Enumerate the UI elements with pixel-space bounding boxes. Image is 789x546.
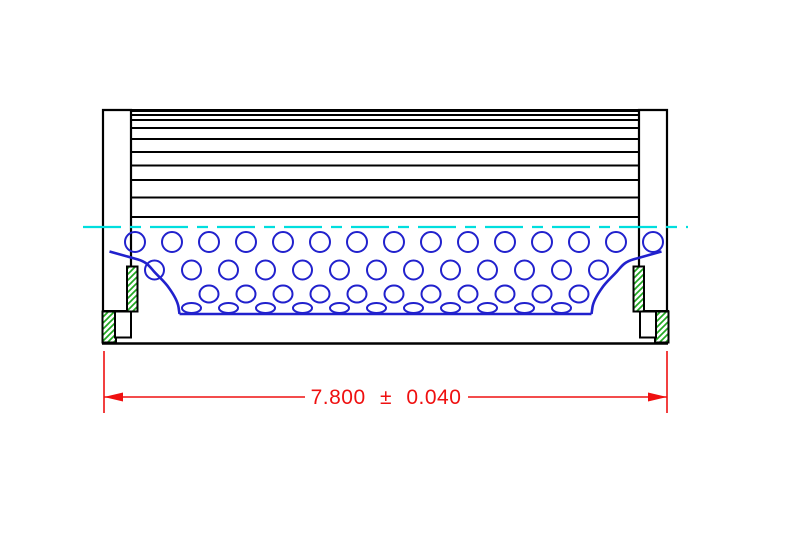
perforation-hole (458, 232, 478, 252)
perforation-hole (310, 232, 330, 252)
perforation-hole (293, 303, 312, 313)
perforation-hole (532, 232, 552, 252)
perforation-hole (533, 286, 552, 303)
left-gasket-box (115, 312, 131, 338)
perforation-hole (219, 261, 238, 280)
perforation-hole (404, 303, 423, 313)
perforation-hole (496, 286, 515, 303)
dimension-arrow-left (104, 393, 123, 402)
perforation-hole (385, 286, 404, 303)
perforation-hole (182, 303, 201, 313)
perforation-hole (330, 303, 349, 313)
perforation-hole (273, 232, 293, 252)
filter-section-drawing: 7.800 ± 0.040 (0, 0, 789, 546)
perforation-hole (274, 286, 293, 303)
perforation-hole (162, 232, 182, 252)
technical-drawing-canvas: 7.800 ± 0.040 (0, 0, 789, 546)
dimension-text: 7.800 ± 0.040 (311, 386, 462, 409)
right-gasket-box (640, 312, 656, 338)
left-lower-hatch-section (103, 312, 117, 343)
perforation-hole (237, 286, 256, 303)
perforation-hole (589, 261, 608, 280)
perforation-hole (256, 303, 275, 313)
perforation-hole (330, 261, 349, 280)
perforation-hole (311, 286, 330, 303)
perforation-hole (256, 261, 275, 280)
perforation-hole (384, 232, 404, 252)
perforation-hole (404, 261, 423, 280)
perforation-hole (367, 303, 386, 313)
perforation-hole (422, 286, 441, 303)
pleat-lines (131, 111, 639, 218)
perforation-hole (219, 303, 238, 313)
perforation-hole (293, 261, 312, 280)
perforation-hole (347, 232, 367, 252)
dimension-arrow-right (648, 393, 667, 402)
perforation-hole (236, 232, 256, 252)
perforation-hole (606, 232, 626, 252)
perforation-hole (441, 303, 460, 313)
perforation-hole (552, 303, 571, 313)
perforation-hole (478, 261, 497, 280)
right-upper-hatch-section (634, 267, 645, 312)
perforation-hole (515, 261, 534, 280)
right-lower-hatch-section (655, 312, 669, 343)
perforation-hole (348, 286, 367, 303)
perforation-hole (495, 232, 515, 252)
perforation-hole (441, 261, 460, 280)
perforation-hole (182, 261, 201, 280)
left-upper-hatch-section (127, 267, 138, 312)
perforation-hole (200, 286, 219, 303)
perforation-holes (125, 232, 663, 313)
perforation-hole (570, 286, 589, 303)
perforation-hole (569, 232, 589, 252)
perforation-hole (459, 286, 478, 303)
perforation-hole (478, 303, 497, 313)
dimension-group: 7.800 ± 0.040 (104, 351, 667, 413)
perforation-hole (367, 261, 386, 280)
perforation-hole (199, 232, 219, 252)
perforation-hole (552, 261, 571, 280)
perforation-hole (421, 232, 441, 252)
perforation-hole (515, 303, 534, 313)
